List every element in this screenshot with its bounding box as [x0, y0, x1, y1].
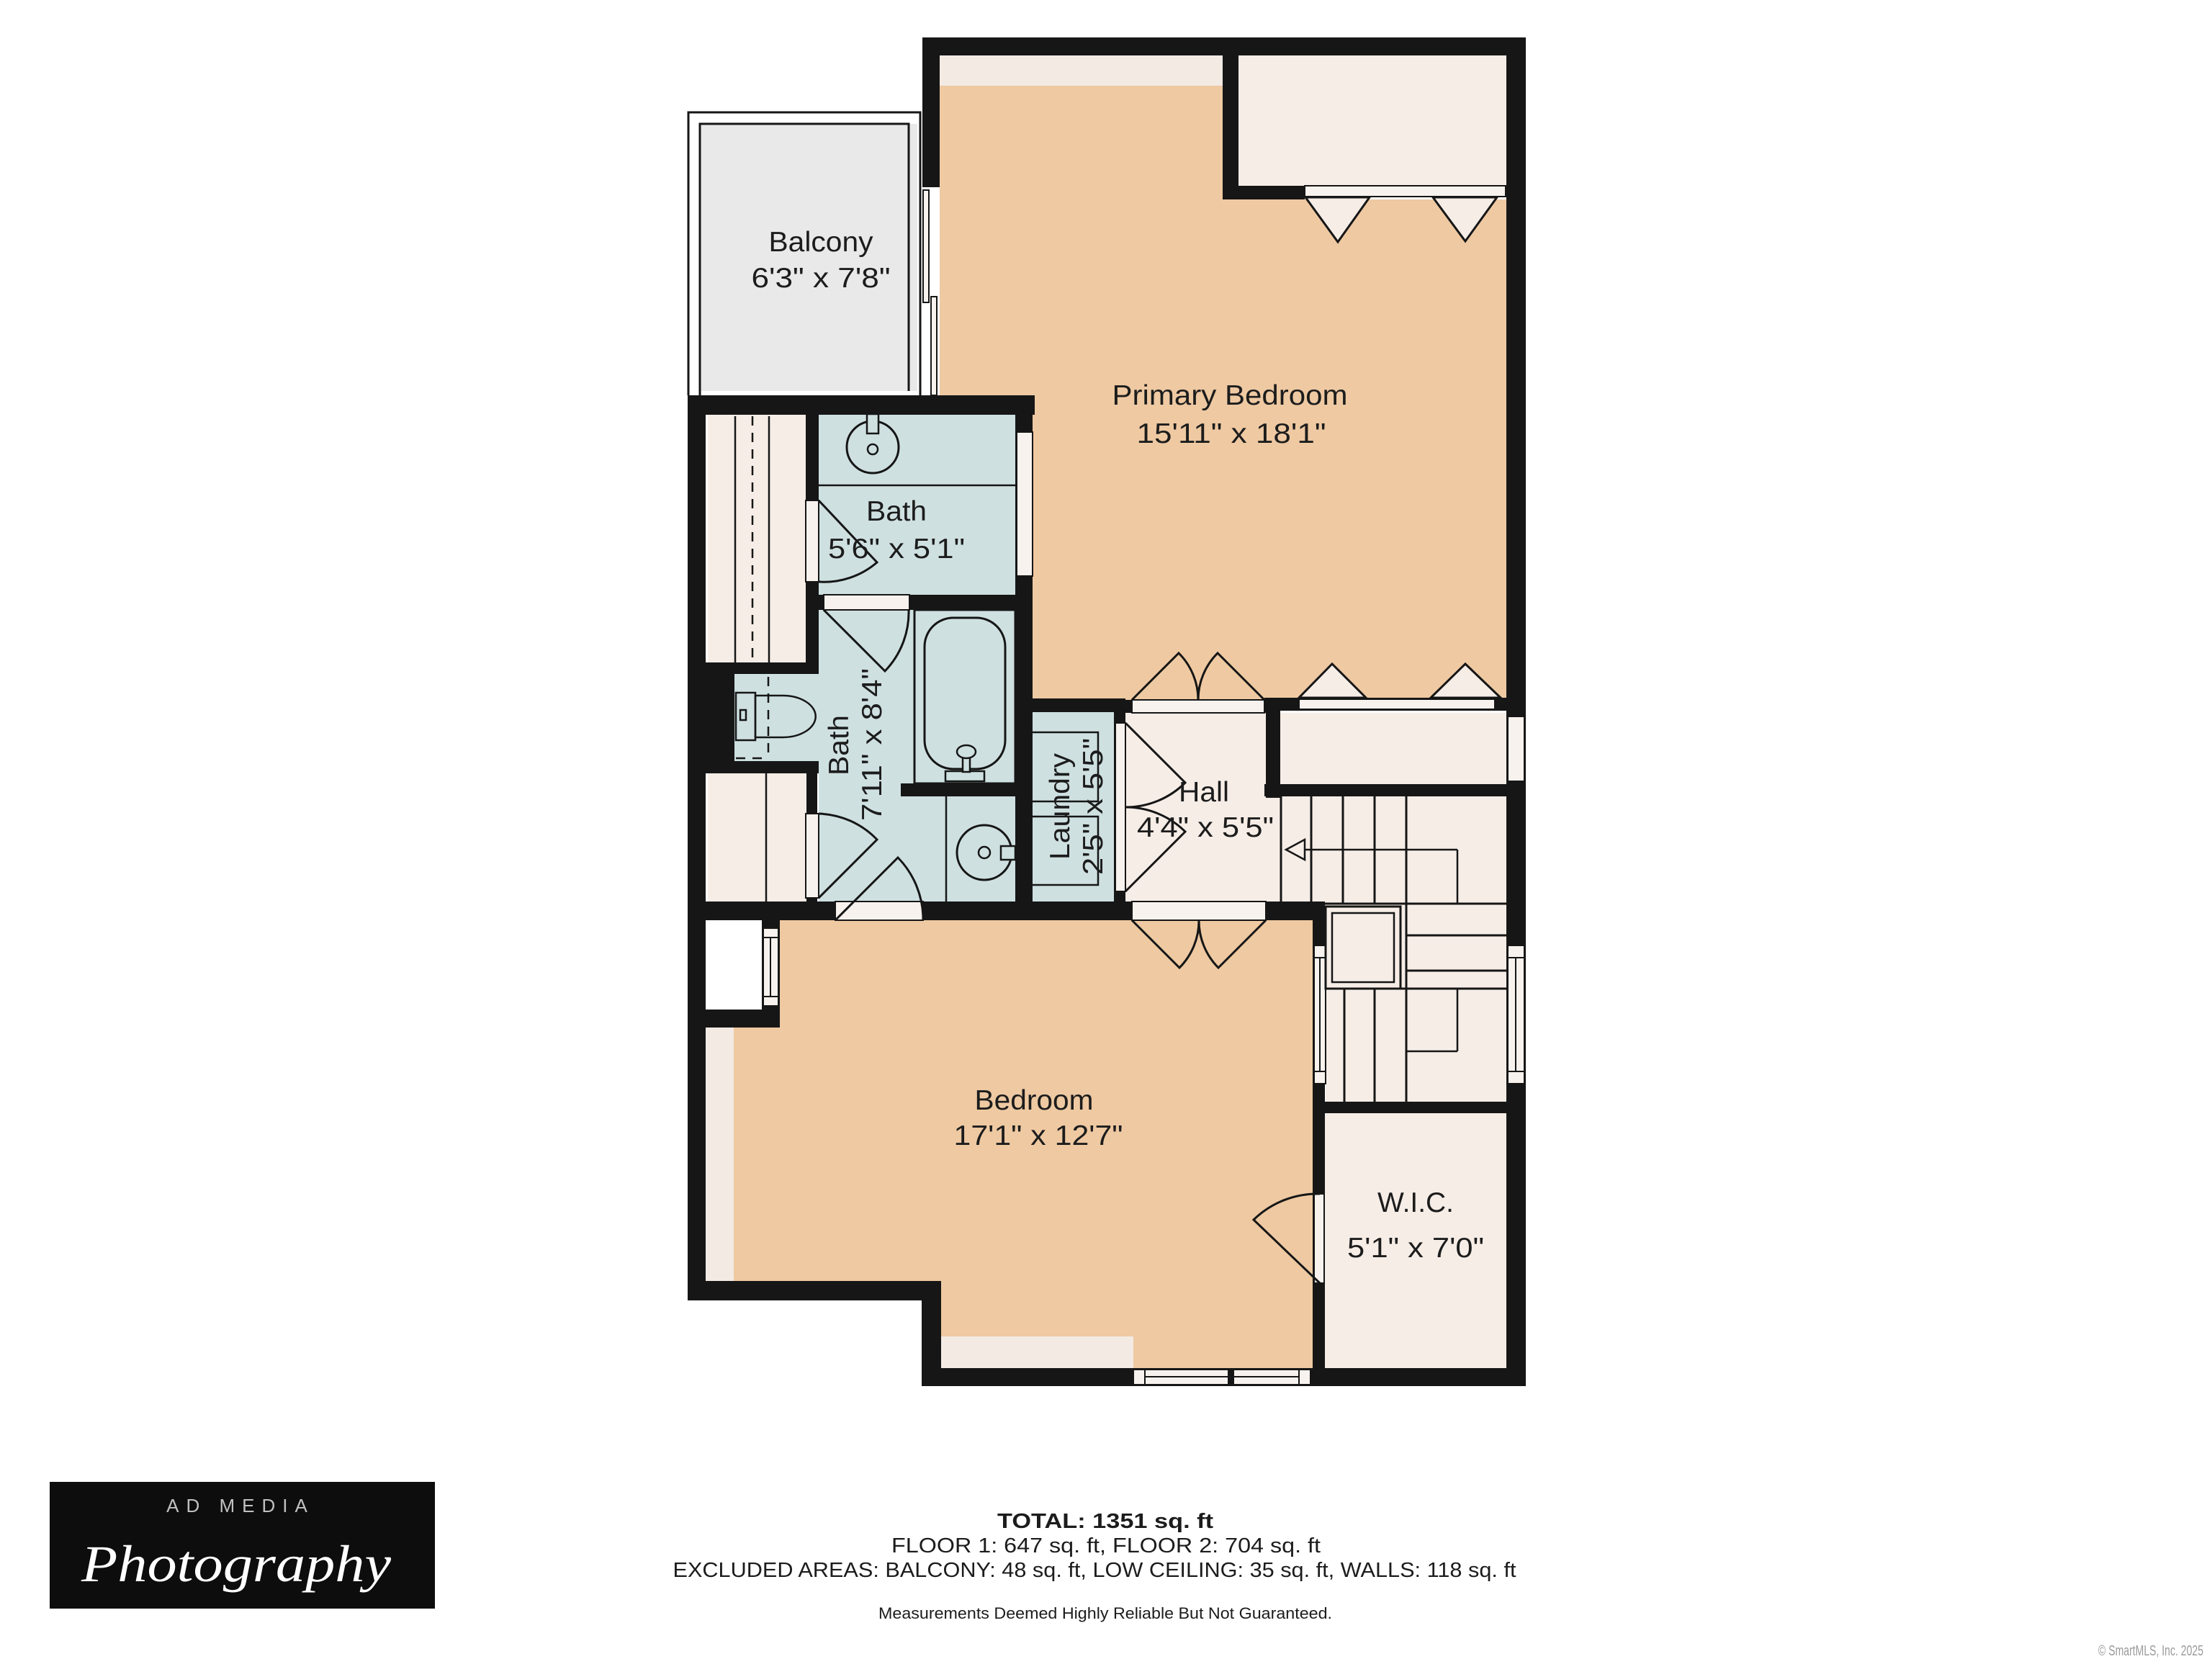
- svg-text:15'11" x 18'1": 15'11" x 18'1": [1137, 418, 1326, 449]
- svg-text:W.I.C.: W.I.C.: [1377, 1187, 1454, 1218]
- svg-text:Measurements Deemed Highly Rel: Measurements Deemed Highly Reliable But …: [878, 1604, 1332, 1622]
- svg-text:Bedroom: Bedroom: [975, 1085, 1094, 1116]
- svg-text:5'6" x 5'1": 5'6" x 5'1": [828, 534, 965, 565]
- svg-text:EXCLUDED AREAS: BALCONY: 48 sq: EXCLUDED AREAS: BALCONY: 48 sq. ft, LOW …: [673, 1559, 1516, 1582]
- svg-text:4'4" x 5'5": 4'4" x 5'5": [1137, 812, 1274, 843]
- svg-text:Laundry: Laundry: [1045, 752, 1076, 860]
- svg-text:5'1" x 7'0": 5'1" x 7'0": [1347, 1233, 1484, 1264]
- svg-text:TOTAL: 1351 sq. ft: TOTAL: 1351 sq. ft: [997, 1510, 1213, 1533]
- svg-text:2'5" x 5'5": 2'5" x 5'5": [1078, 738, 1109, 875]
- svg-text:Balcony: Balcony: [769, 227, 874, 258]
- svg-text:© SmartMLS, Inc. 2025: © SmartMLS, Inc. 2025: [2098, 1643, 2203, 1659]
- svg-text:17'1" x 12'7": 17'1" x 12'7": [954, 1120, 1123, 1151]
- svg-text:Bath: Bath: [866, 496, 927, 527]
- svg-text:Primary Bedroom: Primary Bedroom: [1112, 380, 1348, 411]
- svg-text:7'11" x 8'4": 7'11" x 8'4": [857, 668, 888, 821]
- svg-text:6'3" x 7'8": 6'3" x 7'8": [752, 263, 891, 294]
- svg-text:Bath: Bath: [824, 715, 855, 775]
- svg-text:Photography: Photography: [81, 1535, 391, 1593]
- svg-text:Hall: Hall: [1179, 777, 1229, 808]
- svg-text:FLOOR 1: 647 sq. ft, FLOOR 2:: FLOOR 1: 647 sq. ft, FLOOR 2: 704 sq. ft: [891, 1534, 1321, 1557]
- svg-text:AD MEDIA: AD MEDIA: [166, 1495, 315, 1516]
